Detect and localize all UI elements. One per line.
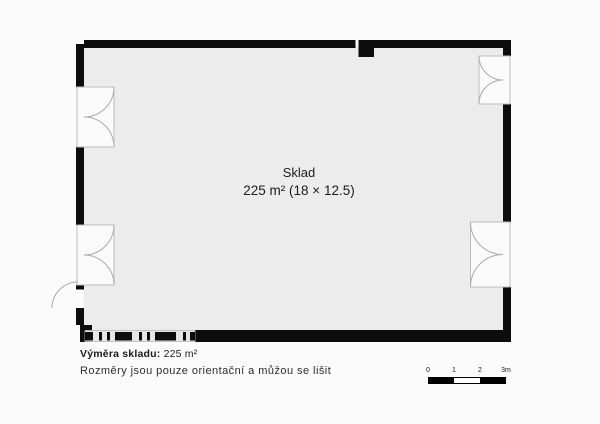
wall-left-seg-1	[76, 44, 84, 87]
storage-area-line: Výměra skladu: 225 m²	[80, 348, 197, 360]
wall-right-seg-2	[503, 104, 511, 222]
room-name-label: Sklad	[283, 165, 316, 180]
scale-segment-dark	[429, 378, 454, 383]
wall-right-seg-3	[503, 287, 511, 342]
double-door-icon	[77, 225, 114, 285]
scale-bar-ticks: 0 1 2 3m	[428, 366, 506, 375]
double-door-icon	[471, 222, 511, 287]
sectional-wall	[85, 331, 195, 342]
wall-top-notch	[359, 40, 375, 57]
wall-bottom-solid	[195, 330, 511, 342]
wall-top-right-run	[374, 40, 511, 48]
floor-plan: Sklad 225 m² (18 × 12.5)	[0, 0, 600, 424]
scale-tick-3: 3m	[501, 366, 511, 375]
disclaimer-text: Rozměry jsou pouze orientační a můžou se…	[80, 365, 331, 377]
double-door-icon	[77, 87, 114, 147]
scale-bar: 0 1 2 3m	[428, 366, 506, 384]
scale-tick-0: 0	[426, 366, 430, 375]
room-area-label: 225 m² (18 × 12.5)	[243, 183, 354, 198]
wall-left-seg-3	[76, 308, 84, 325]
storage-area-label: Výměra skladu:	[80, 348, 160, 360]
scale-tick-2: 2	[478, 366, 482, 375]
scale-bar-segments	[428, 377, 506, 384]
wall-left-seg-2	[76, 147, 84, 225]
storage-area-value: 225 m²	[164, 348, 198, 360]
scale-segment-light	[454, 378, 479, 383]
double-door-icon	[479, 56, 510, 104]
wall-left-stub	[76, 285, 84, 290]
scale-segment-dark	[480, 378, 505, 383]
wall-top-left-run	[84, 40, 356, 48]
scale-tick-1: 1	[452, 366, 456, 375]
floor-plan-page: Sklad 225 m² (18 × 12.5) Výměra skladu: …	[0, 0, 600, 424]
wall-right-seg-1	[503, 40, 511, 56]
